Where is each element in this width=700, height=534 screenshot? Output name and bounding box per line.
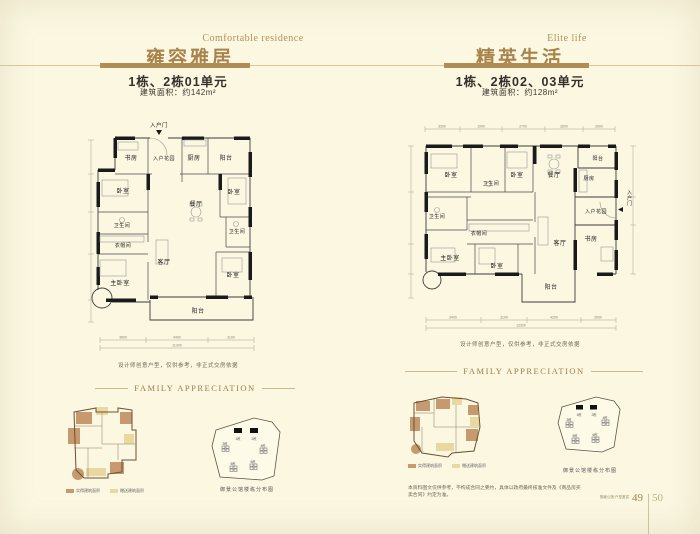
page-divider-line [648,494,649,534]
bath-right-label: 卫生间 [229,228,246,235]
building-label: 1栋 [577,412,583,417]
bath-top-label: 卫生间 [483,180,500,187]
left-title-bar [100,63,250,68]
page-number-right: 50 [652,492,663,504]
kitchen-label: 厨房 [583,175,594,182]
entry-door-label: 入户门 [626,190,632,207]
right-site-plan: 1栋 2栋 3栋 4栋 5栋 6栋 [556,395,624,459]
entry-door-label: 入户门 [150,121,168,129]
bedroom-bottom-label: 卧室 [226,271,239,279]
master-bedroom-label: 主卧室 [440,254,460,262]
left-area: 建筑面积：约142m² [98,87,258,98]
right-plan-disclaimer: 设计师创意户型，仅供参考，非正式交房依据 [435,340,605,348]
balcony-bottom-label: 阳台 [191,307,204,315]
building-1-highlight [576,405,583,410]
building-label: 4栋 [603,415,609,420]
left-site-plan: 1栋 2栋 3栋 4栋 5栋 6栋 [208,414,286,484]
legend-swatch-cream [110,489,118,493]
right-plan-furniture [431,152,613,264]
legend-item: 赠送建筑面积 [452,463,486,469]
building-2-highlight [250,428,258,433]
mini-plan-fills [68,407,134,480]
dim-label: 4400 [173,336,181,340]
rule-line [591,371,643,372]
bath-left-label: 卫生间 [114,222,131,229]
left-site-caption: 御景公馆楼栋分布图 [208,486,286,493]
right-plan-room-labels: 卧室 卫生间 卧室 餐厅 阳台 厨房 入户花园 入户门 卫生间 衣帽间 主卧室 … [429,155,632,291]
legend-item: 实得建筑面积 [408,463,442,469]
building-label: 5栋 [573,433,579,438]
right-mini-legend: 实得建筑面积 赠送建筑面积 [408,463,486,469]
entry-arrow-icon [618,207,623,212]
dim-label: 1900 [477,125,485,129]
legend-item: 实得建筑面积 [66,488,100,494]
mini-plan-fills [410,397,480,454]
legend-swatch-cream [452,464,460,468]
building-label: 6栋 [593,432,599,437]
legend-swatch-tan [408,464,416,468]
right-site-caption: 御景公馆楼栋分布图 [548,467,632,474]
entry-garden-label: 入户花园 [585,208,607,215]
page-caption: 御景公馆·户型鉴赏 [575,495,629,500]
study-label: 书房 [584,235,597,243]
right-family-heading-row: FAMILY APPRECIATION [405,366,643,376]
study-label: 书房 [124,154,137,162]
legend-swatch-tan [66,489,74,493]
dim-label: 12300 [516,324,526,328]
balcony-bottom-label: 阳台 [544,283,557,291]
dim-label: 3100 [227,336,235,340]
building-label: 5栋 [231,461,237,466]
left-floorplan: 3800 4400 3100 11300 入户门 书房 入户花园 厨房 阳台 卧… [86,112,271,357]
balcony-tr-label: 阳台 [592,155,603,162]
dim-label: 3400 [449,316,457,320]
page-number-left: 49 [632,492,643,504]
bedroom-bc-label: 卧室 [490,262,503,270]
left-mini-plan [66,404,140,484]
master-bedroom-label: 主卧室 [110,279,130,287]
bedroom-tc-label: 卧室 [510,171,523,179]
cloakroom-label: 衣帽间 [471,230,488,237]
building-label: 2栋 [252,436,258,441]
bath-left-label: 卫生间 [429,213,446,220]
bedroom-right-label: 卧室 [227,188,240,196]
bedroom-left-label: 卧室 [116,187,129,195]
building-label: 2栋 [592,412,598,417]
building-2-highlight [590,405,597,410]
dim-label: 2700 [519,125,527,129]
right-title-bar [444,63,589,68]
cloakroom-label: 衣帽间 [115,242,132,249]
dim-label: 3800 [119,336,127,340]
legend-label: 赠送建筑面积 [462,463,486,469]
right-floorplan: 3300 1900 2700 3600 2600 3400 3100 4200 … [405,122,640,337]
rule-line [262,388,295,389]
building-label: 3栋 [567,417,573,422]
bedroom-tl-label: 卧室 [444,171,457,179]
living-label: 客厅 [553,239,566,247]
balcony-top-label: 阳台 [219,154,232,162]
left-family-heading-row: FAMILY APPRECIATION [95,383,295,393]
dining-label: 餐厅 [189,200,202,208]
dim-label: 4200 [550,316,558,320]
dim-label: 3100 [500,316,508,320]
entry-arrow-icon [156,130,162,135]
entry-garden-label: 入户花园 [153,155,175,162]
dim-label: 3300 [438,125,446,129]
footer-note: 本资料图文仅供参考，不构成合同之要约，具体以政府最终核准文件及《商品房买卖合同》… [408,484,583,498]
legend-label: 实得建筑面积 [418,463,442,469]
building-label: 3栋 [223,441,229,446]
dim-label: 3600 [560,125,568,129]
dim-label: 2600 [594,316,602,320]
dim-label: 11300 [172,344,182,348]
legend-item: 赠送建筑面积 [110,488,144,494]
legend-label: 赠送建筑面积 [120,488,144,494]
kitchen-label: 厨房 [187,154,200,162]
right-area: 建筑面积：约128m² [440,87,600,98]
building-label: 4栋 [261,443,267,448]
building-1-highlight [234,428,242,433]
legend-label: 实得建筑面积 [76,488,100,494]
family-appreciation-heading: FAMILY APPRECIATION [134,383,255,393]
brochure-page: { "colors":{"bg":"#FBF7E1","accent":"#B1… [0,0,700,534]
rule-line [405,371,457,372]
right-mini-plan [408,393,484,459]
living-label: 客厅 [157,258,170,266]
rule-line [95,388,128,389]
left-mini-legend: 实得建筑面积 赠送建筑面积 [66,488,144,494]
building-label: 6栋 [251,459,257,464]
family-appreciation-heading: FAMILY APPRECIATION [463,366,584,376]
dim-label: 2600 [595,125,603,129]
building-label: 1栋 [236,436,242,441]
dining-label: 餐厅 [547,171,560,179]
left-plan-disclaimer: 设计师创意户型，仅供参考，非正式交房依据 [88,361,268,369]
